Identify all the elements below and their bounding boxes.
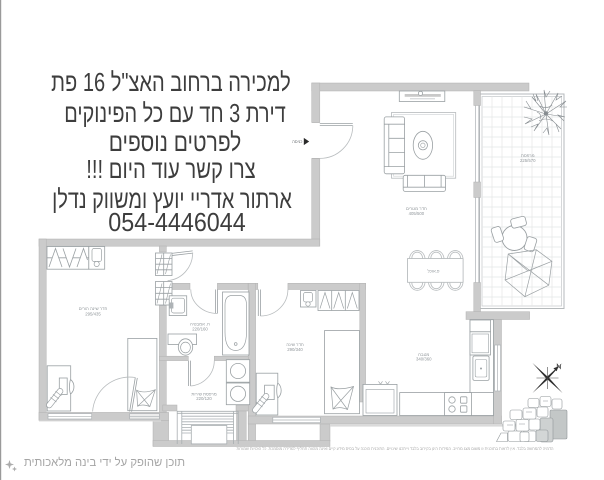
svg-text:225/570: 225/570 [520, 158, 536, 163]
svg-text:405/500: 405/500 [409, 211, 425, 216]
svg-text:חדר שינה הורים: חדר שינה הורים [79, 306, 108, 311]
svg-text:220/120: 220/120 [196, 396, 212, 401]
svg-text:פ.אוכל: פ.אוכל [427, 269, 439, 274]
svg-text:295/435: 295/435 [85, 311, 101, 316]
svg-text:220/160: 220/160 [192, 326, 208, 331]
svg-text:340/360: 340/360 [416, 357, 432, 362]
svg-text:290/340: 290/340 [287, 347, 303, 352]
